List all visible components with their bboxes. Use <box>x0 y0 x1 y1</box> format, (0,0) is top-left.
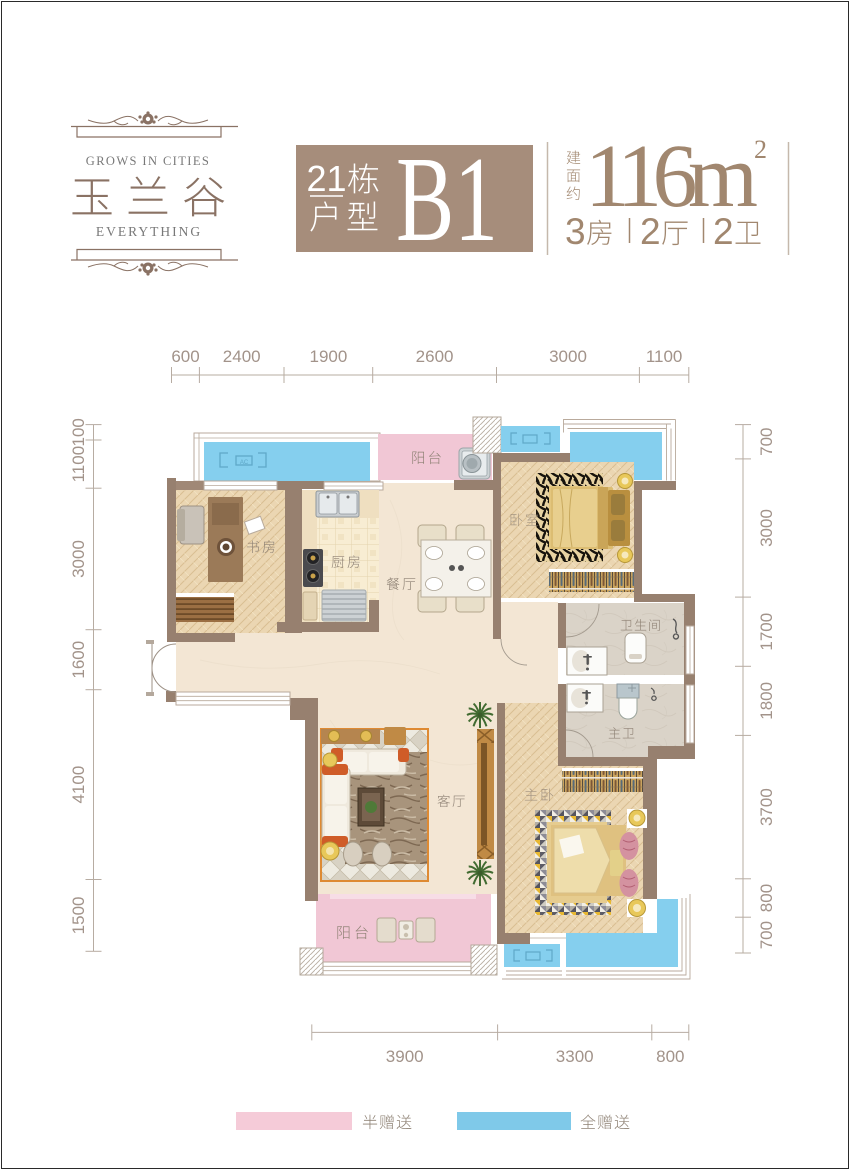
svg-text:B1: B1 <box>396 132 498 267</box>
svg-text:1100: 1100 <box>646 347 683 366</box>
svg-text:AC: AC <box>240 460 249 466</box>
svg-text:21: 21 <box>306 158 346 199</box>
svg-text:700: 700 <box>757 428 776 456</box>
svg-text:4100: 4100 <box>69 766 88 804</box>
svg-text:2: 2 <box>640 211 661 252</box>
svg-text:3000: 3000 <box>757 509 776 547</box>
svg-text:2400: 2400 <box>223 347 261 366</box>
svg-text:3000: 3000 <box>549 347 587 366</box>
svg-text:3300: 3300 <box>556 1047 594 1066</box>
svg-text:800: 800 <box>757 884 776 912</box>
svg-text:3000: 3000 <box>69 540 88 578</box>
svg-text:1100: 1100 <box>69 446 88 483</box>
svg-text:100: 100 <box>69 418 88 446</box>
svg-text:1600: 1600 <box>69 641 88 679</box>
svg-text:600: 600 <box>171 347 199 366</box>
svg-text:2: 2 <box>713 211 734 252</box>
svg-text:800: 800 <box>656 1047 684 1066</box>
svg-text:1800: 1800 <box>757 682 776 720</box>
svg-text:EVERYTHING: EVERYTHING <box>96 224 202 239</box>
svg-text:1900: 1900 <box>309 347 347 366</box>
svg-text:1700: 1700 <box>757 613 776 651</box>
svg-text:1500: 1500 <box>69 896 88 934</box>
svg-text:3: 3 <box>565 211 586 252</box>
svg-text:2: 2 <box>754 135 767 164</box>
svg-text:700: 700 <box>757 921 776 949</box>
svg-text:3700: 3700 <box>757 788 776 826</box>
svg-text:2600: 2600 <box>416 347 454 366</box>
svg-text:3900: 3900 <box>386 1047 424 1066</box>
svg-text:GROWS IN CITIES: GROWS IN CITIES <box>86 154 210 168</box>
